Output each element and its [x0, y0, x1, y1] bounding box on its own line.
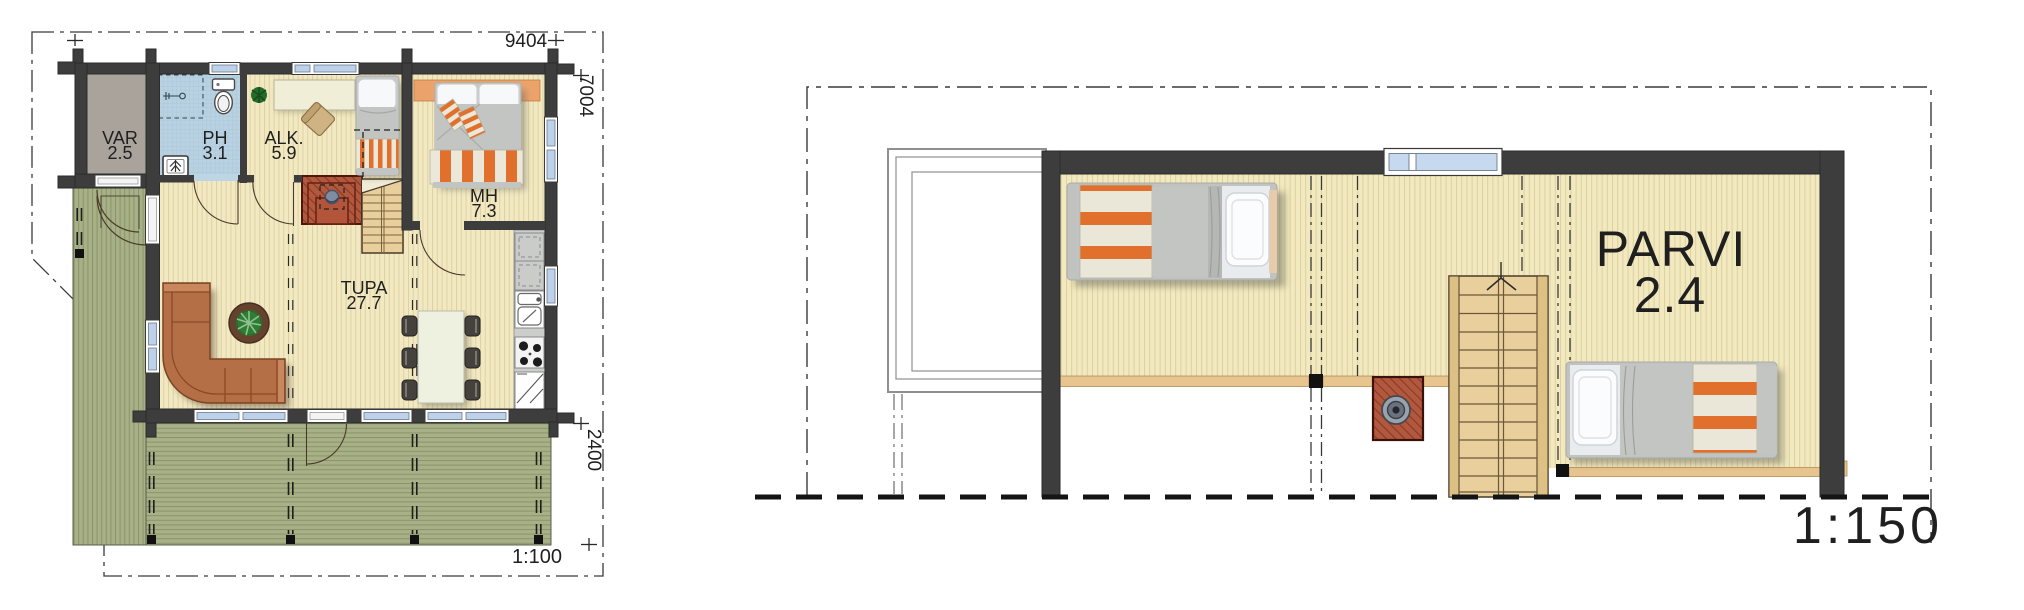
- svg-text:7.3: 7.3: [471, 201, 496, 221]
- svg-text:3.1: 3.1: [202, 143, 227, 163]
- svg-text:2.5: 2.5: [107, 143, 132, 163]
- svg-text:5.9: 5.9: [271, 143, 296, 163]
- svg-text:1:150: 1:150: [1793, 497, 1943, 555]
- svg-text:27.7: 27.7: [346, 293, 381, 313]
- svg-text:2400: 2400: [583, 429, 604, 471]
- svg-text:2.4: 2.4: [1634, 267, 1707, 323]
- svg-text:7004: 7004: [575, 75, 596, 118]
- svg-text:9404: 9404: [505, 31, 548, 52]
- svg-text:1:100: 1:100: [512, 546, 562, 568]
